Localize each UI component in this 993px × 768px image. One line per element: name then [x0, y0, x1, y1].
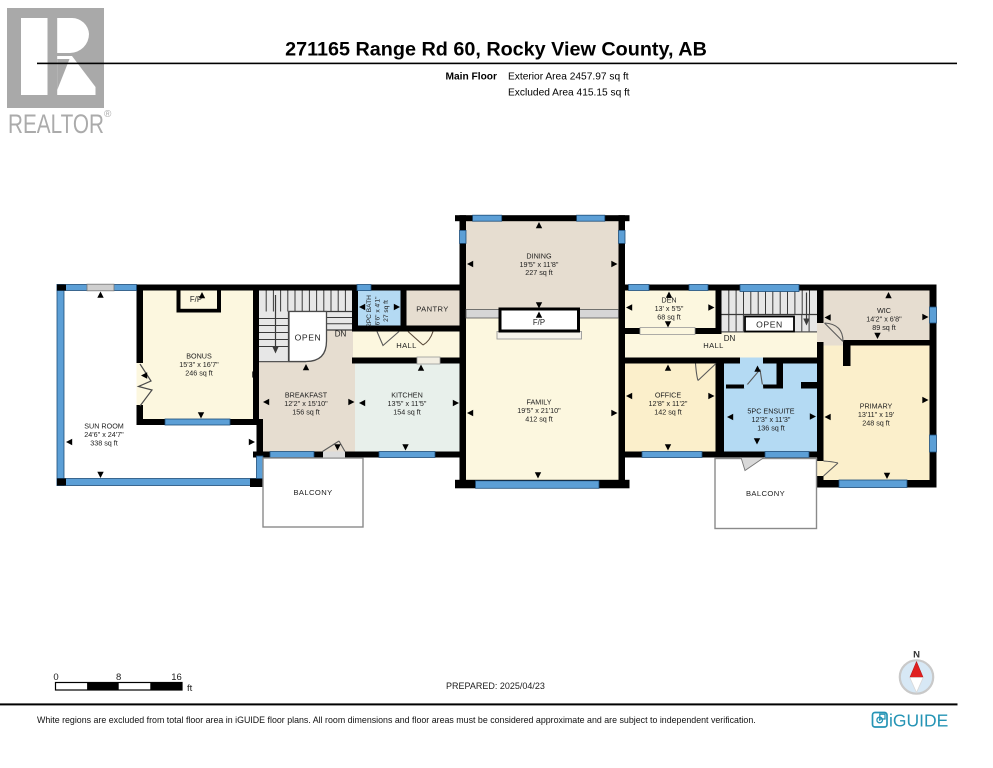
svg-text:BALCONY: BALCONY: [293, 488, 332, 497]
svg-text:White regions are excluded fro: White regions are excluded from total fl…: [37, 715, 756, 725]
svg-text:16: 16: [171, 672, 182, 683]
svg-text:OPEN: OPEN: [295, 333, 322, 343]
svg-text:248 sq ft: 248 sq ft: [862, 418, 890, 427]
svg-text:27 sq ft: 27 sq ft: [383, 300, 390, 322]
svg-text:Exterior Area 2457.97 sq ft: Exterior Area 2457.97 sq ft: [508, 72, 629, 83]
svg-text:156 sq ft: 156 sq ft: [292, 407, 320, 416]
svg-text:N: N: [913, 650, 920, 661]
svg-text:F/P: F/P: [533, 318, 545, 327]
svg-text:ft: ft: [187, 683, 193, 694]
svg-text:68 sq ft: 68 sq ft: [657, 312, 681, 321]
svg-text:BALCONY: BALCONY: [746, 489, 785, 498]
svg-text:PREPARED: 2025/04/23: PREPARED: 2025/04/23: [446, 681, 545, 691]
svg-text:®: ®: [104, 109, 112, 120]
svg-text:0: 0: [53, 672, 58, 683]
svg-text:HALL: HALL: [396, 341, 417, 350]
svg-text:136 sq ft: 136 sq ft: [757, 423, 785, 432]
svg-text:DN: DN: [335, 330, 347, 339]
svg-text:142 sq ft: 142 sq ft: [654, 407, 682, 416]
svg-text:HALL: HALL: [703, 341, 724, 350]
svg-text:338 sq ft: 338 sq ft: [90, 438, 118, 447]
svg-text:89 sq ft: 89 sq ft: [872, 323, 896, 332]
svg-text:6'6" x 4'1": 6'6" x 4'1": [375, 296, 382, 325]
svg-text:8: 8: [116, 672, 121, 683]
svg-text:PANTRY: PANTRY: [416, 305, 449, 314]
svg-text:OPEN: OPEN: [756, 320, 783, 330]
svg-text:271165 Range Rd 60, Rocky View: 271165 Range Rd 60, Rocky View County, A…: [285, 39, 707, 61]
svg-text:246 sq ft: 246 sq ft: [185, 368, 213, 377]
svg-text:iGUIDE: iGUIDE: [889, 711, 948, 731]
svg-text:Excluded Area 415.15 sq ft: Excluded Area 415.15 sq ft: [508, 88, 630, 99]
svg-text:Main Floor: Main Floor: [446, 72, 498, 83]
svg-text:154 sq ft: 154 sq ft: [393, 407, 421, 416]
svg-text:227 sq ft: 227 sq ft: [525, 268, 553, 277]
svg-text:412 sq ft: 412 sq ft: [525, 414, 553, 423]
svg-text:2PC BATH: 2PC BATH: [366, 295, 373, 327]
svg-text:DN: DN: [724, 334, 736, 343]
svg-text:REALTOR: REALTOR: [8, 109, 104, 139]
